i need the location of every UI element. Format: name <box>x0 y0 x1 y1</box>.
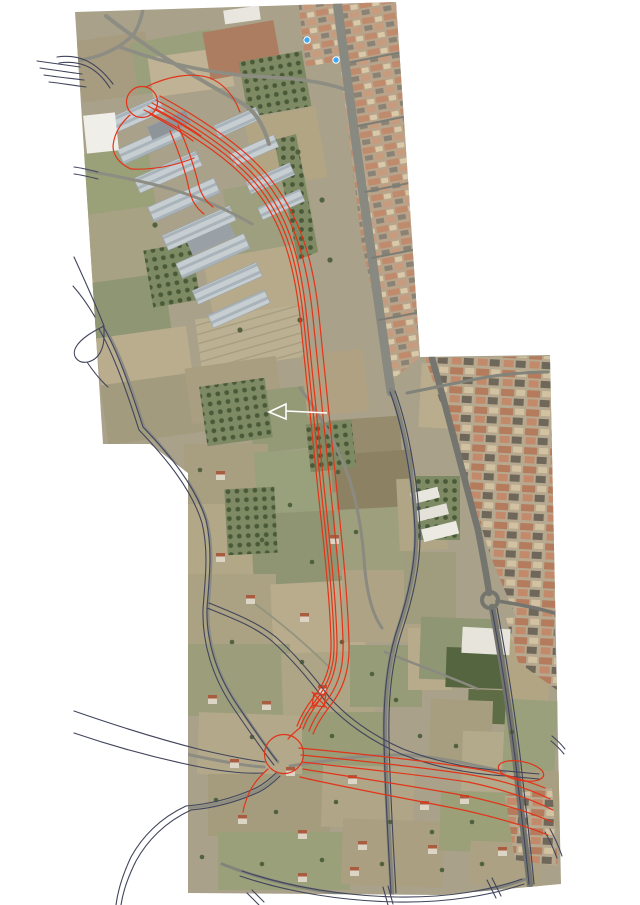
hook-curve <box>116 806 186 905</box>
topleft-fan-line <box>44 75 84 80</box>
junction-merge-line <box>73 286 95 317</box>
map-canvas <box>0 0 640 905</box>
blue-dot-marker <box>304 37 310 43</box>
hook-curve <box>121 810 191 905</box>
blue-dot-marker <box>333 57 339 63</box>
topleft-fan-line <box>37 61 80 67</box>
topleft-fan-line <box>40 68 82 74</box>
orthophoto-figure <box>0 0 640 905</box>
